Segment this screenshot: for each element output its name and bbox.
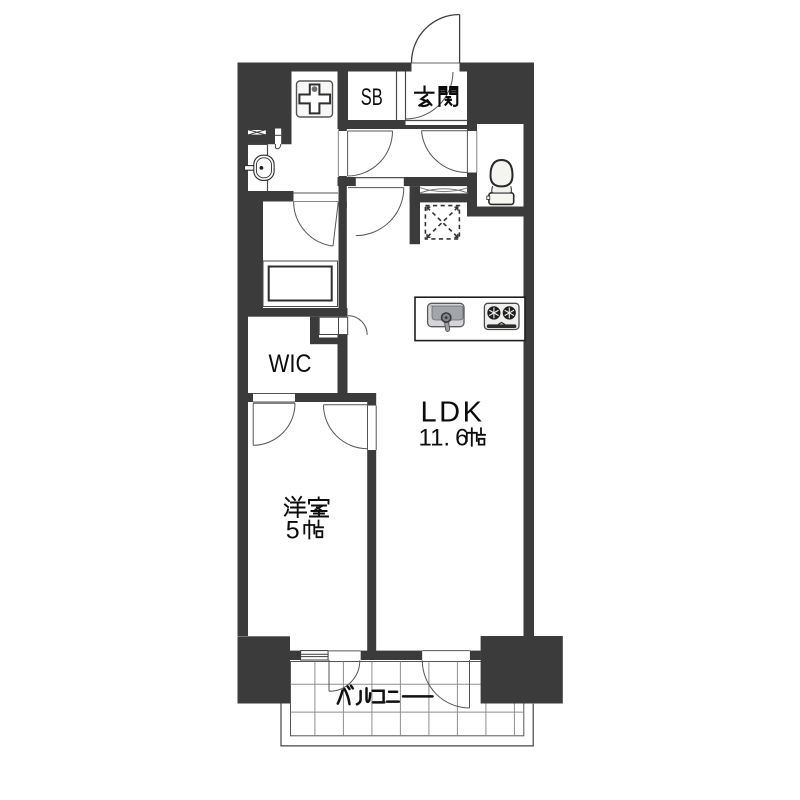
svg-text:LDK: LDK [421,396,485,428]
svg-text:11.6: 11.6 [419,425,469,452]
svg-text:5: 5 [286,517,300,545]
svg-text:SB: SB [361,84,383,111]
svg-text:WIC: WIC [269,350,312,378]
